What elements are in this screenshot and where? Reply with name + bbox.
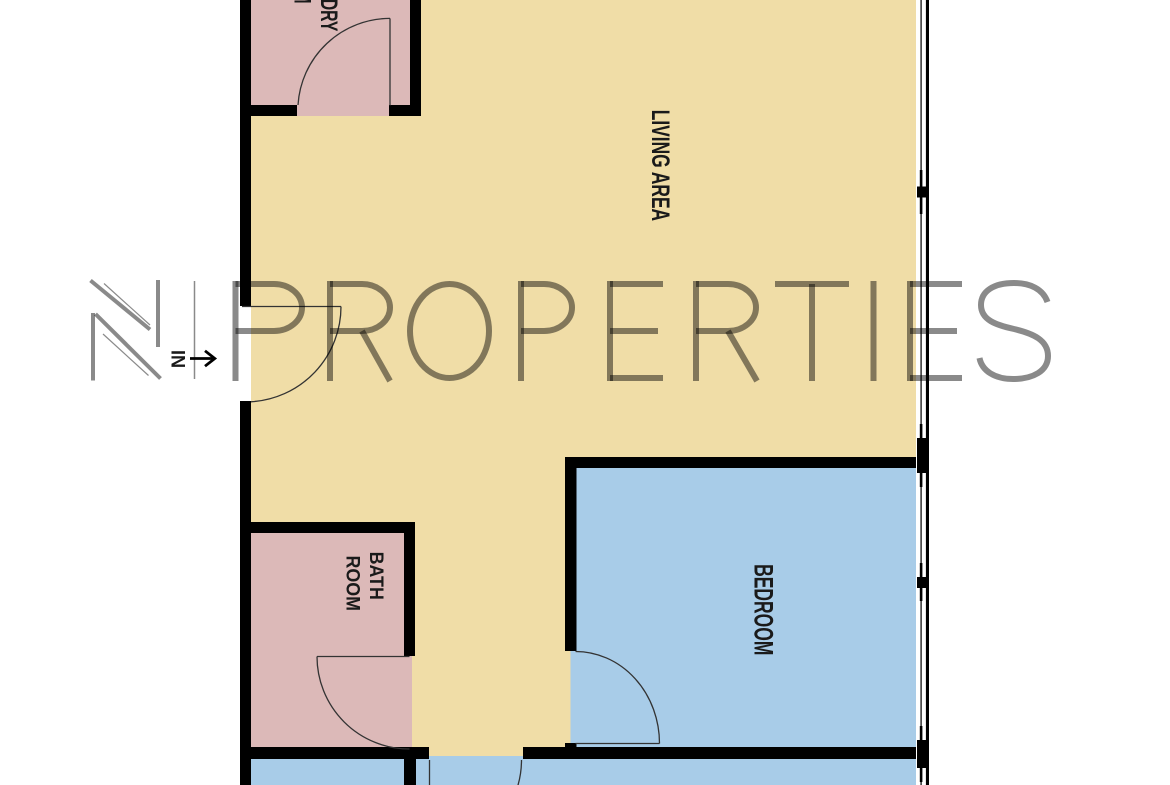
svg-text:IN: IN — [167, 350, 189, 368]
svg-text:LIVING AREA: LIVING AREA — [646, 110, 674, 221]
svg-text:ROOM: ROOM — [342, 555, 364, 611]
svg-text:BATH: BATH — [366, 552, 388, 600]
svg-text:ROOM: ROOM — [288, 0, 315, 4]
svg-text:BEDROOM: BEDROOM — [749, 564, 779, 655]
svg-text:LAUNDRY: LAUNDRY — [315, 0, 342, 32]
